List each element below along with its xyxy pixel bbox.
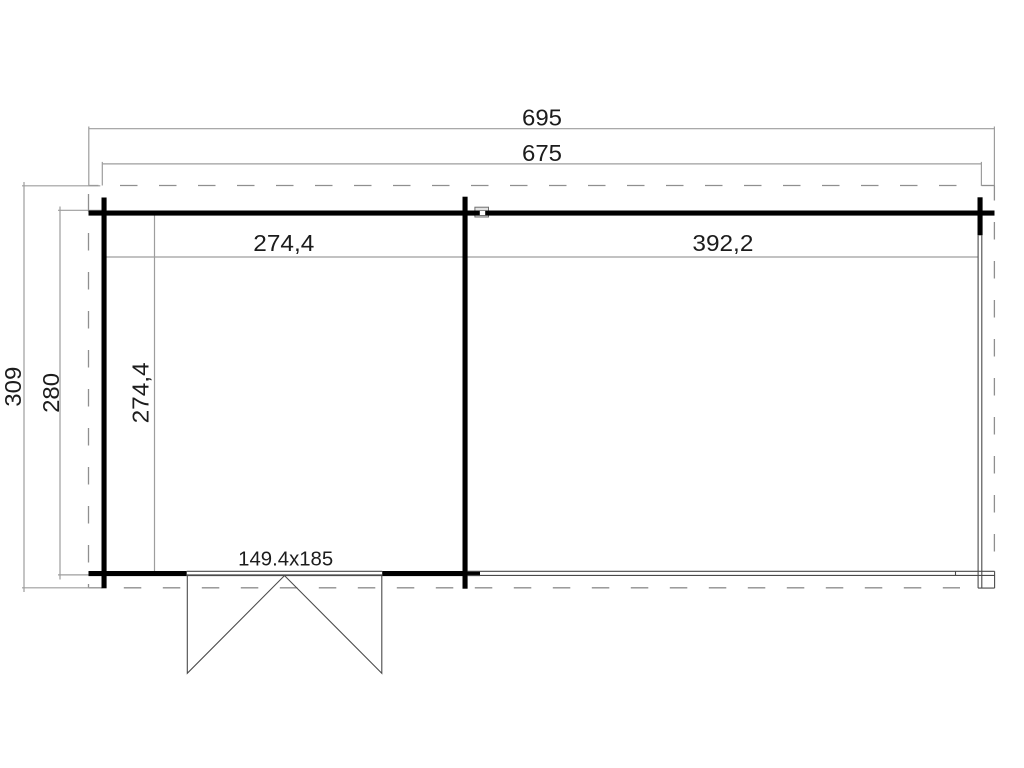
svg-text:274,4: 274,4 (128, 362, 154, 423)
svg-text:274,4: 274,4 (253, 230, 314, 256)
svg-text:280: 280 (38, 373, 64, 413)
svg-text:695: 695 (522, 105, 562, 131)
svg-text:392,2: 392,2 (692, 230, 753, 256)
svg-text:309: 309 (0, 367, 26, 407)
svg-text:149.4x185: 149.4x185 (238, 549, 333, 571)
svg-text:675: 675 (522, 140, 562, 166)
